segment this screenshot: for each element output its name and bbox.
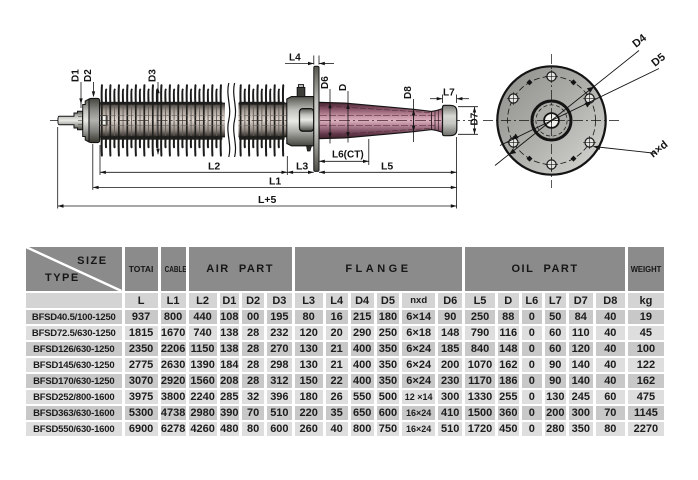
svg-text:D1: D1 [71,69,82,82]
svg-text:D2: D2 [83,69,94,82]
svg-text:L5: L5 [381,161,393,173]
svg-text:L3: L3 [296,161,308,173]
svg-text:D4: D4 [630,32,649,51]
svg-text:L7: L7 [443,88,455,99]
svg-text:L1: L1 [269,176,281,188]
svg-text:L4: L4 [289,53,301,64]
svg-text:L+5: L+5 [258,194,277,206]
svg-text:D: D [338,84,349,91]
svg-text:D3: D3 [148,69,159,82]
svg-text:D7: D7 [470,112,481,125]
svg-text:n×d: n×d [647,139,670,161]
svg-text:L6(CT): L6(CT) [332,150,364,161]
svg-text:L2: L2 [208,161,220,173]
svg-text:D5: D5 [649,51,667,69]
svg-text:D8: D8 [403,86,414,99]
svg-text:D6: D6 [320,76,331,89]
